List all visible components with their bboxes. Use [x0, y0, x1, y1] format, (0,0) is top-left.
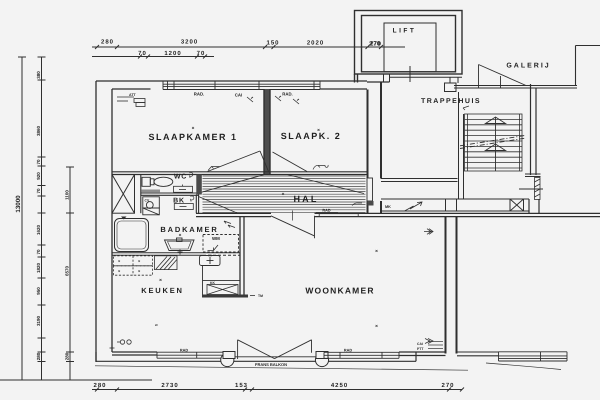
svg-text:2730: 2730	[161, 382, 178, 389]
svg-text:TRAPPEHUIS: TRAPPEHUIS	[421, 98, 481, 105]
svg-text:153: 153	[235, 382, 248, 389]
svg-text:MK: MK	[385, 205, 391, 209]
svg-text:150: 150	[266, 40, 279, 47]
svg-text:280: 280	[101, 39, 114, 46]
svg-text:1200: 1200	[164, 50, 181, 57]
svg-text:950: 950	[36, 287, 41, 295]
svg-text:3200: 3200	[181, 39, 198, 46]
svg-text:SLAAPK. 2: SLAAPK. 2	[281, 131, 342, 141]
svg-text:920: 920	[36, 172, 41, 180]
svg-text:RAD: RAD	[180, 349, 188, 353]
svg-text:4250: 4250	[331, 382, 348, 389]
svg-text:KK: KK	[210, 281, 215, 285]
svg-text:GALERIJ: GALERIJ	[506, 63, 550, 70]
svg-text:SLAAPKAMER 1: SLAAPKAMER 1	[148, 132, 237, 142]
svg-text:HAL: HAL	[293, 194, 318, 204]
svg-text:w: w	[154, 323, 158, 327]
svg-text:280: 280	[65, 352, 70, 360]
svg-text:13000: 13000	[15, 195, 22, 213]
svg-text:BADKAMER: BADKAMER	[160, 225, 218, 234]
svg-text:×: ×	[375, 250, 378, 255]
svg-text:70: 70	[36, 159, 41, 165]
svg-text:ATT: ATT	[129, 93, 137, 97]
svg-text:1100: 1100	[65, 190, 70, 200]
svg-text:WC: WC	[174, 174, 187, 181]
svg-text:×: ×	[375, 325, 378, 330]
svg-text:70: 70	[36, 188, 41, 194]
svg-text:CAI: CAI	[235, 93, 242, 98]
svg-text:6570: 6570	[65, 265, 70, 276]
svg-text:280: 280	[36, 352, 41, 360]
svg-text:CV: CV	[145, 199, 150, 203]
svg-text:70: 70	[197, 50, 206, 57]
svg-text:×: ×	[159, 279, 162, 284]
svg-text:KEUKEN: KEUKEN	[141, 286, 183, 295]
svg-text:PTT: PTT	[417, 347, 424, 351]
svg-text:×: ×	[282, 193, 285, 198]
svg-text:FRANS BALKON: FRANS BALKON	[255, 362, 287, 367]
svg-text:×: ×	[317, 129, 320, 134]
svg-text:LIFT: LIFT	[393, 28, 417, 35]
svg-text:CAI: CAI	[417, 342, 423, 346]
svg-text:70: 70	[36, 249, 41, 255]
svg-text:RAD.: RAD.	[194, 92, 205, 97]
svg-text:RAD.: RAD.	[282, 92, 293, 97]
svg-text:3860: 3860	[36, 125, 41, 136]
svg-text:WM: WM	[212, 236, 220, 241]
svg-text:WOONKAMER: WOONKAMER	[305, 286, 374, 296]
svg-text:2020: 2020	[307, 40, 324, 47]
svg-text:270: 270	[370, 41, 381, 48]
svg-text:3190: 3190	[36, 315, 41, 326]
svg-text:1820: 1820	[36, 262, 41, 273]
svg-text:RAD: RAD	[322, 209, 330, 213]
svg-text:270: 270	[441, 382, 454, 389]
svg-text:70: 70	[138, 50, 147, 57]
svg-text:×: ×	[192, 127, 195, 132]
svg-text:RAD: RAD	[344, 349, 352, 353]
svg-text:280: 280	[93, 382, 106, 389]
svg-text:1620: 1620	[36, 224, 41, 235]
svg-text:380: 380	[36, 71, 41, 79]
svg-text:TM: TM	[258, 294, 263, 298]
